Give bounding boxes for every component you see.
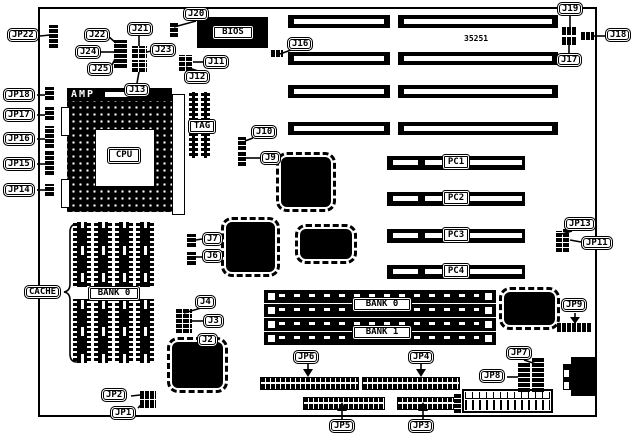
simm-bank0-label: BANK 0 (352, 297, 412, 312)
callout-j11: J11 (203, 55, 229, 69)
callout-jp4: JP4 (408, 350, 434, 364)
callout-jp1: JP1 (110, 406, 136, 420)
bios-label: BIOS (212, 25, 254, 40)
callout-cache: CACHE (24, 285, 61, 299)
callout-j3: J3 (203, 314, 224, 328)
callout-j10: J10 (251, 125, 277, 139)
callout-j19: J19 (557, 2, 583, 16)
callout-jp16: JP16 (3, 132, 35, 146)
callout-jp6: JP6 (293, 350, 319, 364)
callout-jp14: JP14 (3, 183, 35, 197)
callout-j22: J22 (84, 28, 110, 42)
callout-j20: J20 (183, 7, 209, 21)
callout-j16: J16 (287, 37, 313, 51)
callout-j24: J24 (75, 45, 101, 59)
tag-label: TAG (188, 119, 216, 134)
callout-jp7: JP7 (506, 346, 532, 360)
simm-bank1-label: BANK 1 (352, 325, 412, 340)
motherboard-diagram: 35251 PC1 PC2 PC3 PC4 BIOS AMP CPU TAG B… (0, 0, 635, 436)
callout-j6: J6 (202, 249, 223, 263)
callout-jp3: JP3 (408, 419, 434, 433)
callout-j17: J17 (556, 53, 582, 67)
callout-jp11: JP11 (581, 236, 613, 250)
callout-j25: J25 (87, 62, 113, 76)
callout-jp22: JP22 (7, 28, 39, 42)
callout-jp9: JP9 (561, 298, 587, 312)
callout-j13: J13 (124, 83, 150, 97)
callout-j4: J4 (195, 295, 216, 309)
callout-j2: J2 (197, 333, 218, 347)
callout-jp2: JP2 (101, 388, 127, 402)
callout-j23: J23 (150, 43, 176, 57)
callout-jp15: JP15 (3, 157, 35, 171)
callout-j12: J12 (184, 70, 210, 84)
callout-jp18: JP18 (3, 88, 35, 102)
callout-jp8: JP8 (479, 369, 505, 383)
callout-jp17: JP17 (3, 108, 35, 122)
callout-j9: J9 (260, 151, 281, 165)
callout-j7: J7 (202, 232, 223, 246)
callout-jp5: JP5 (329, 419, 355, 433)
callout-j21: J21 (127, 22, 153, 36)
cache-bank0-label: BANK 0 (88, 286, 140, 301)
callout-j18: J18 (605, 28, 631, 42)
callout-jp13: JP13 (564, 217, 596, 231)
